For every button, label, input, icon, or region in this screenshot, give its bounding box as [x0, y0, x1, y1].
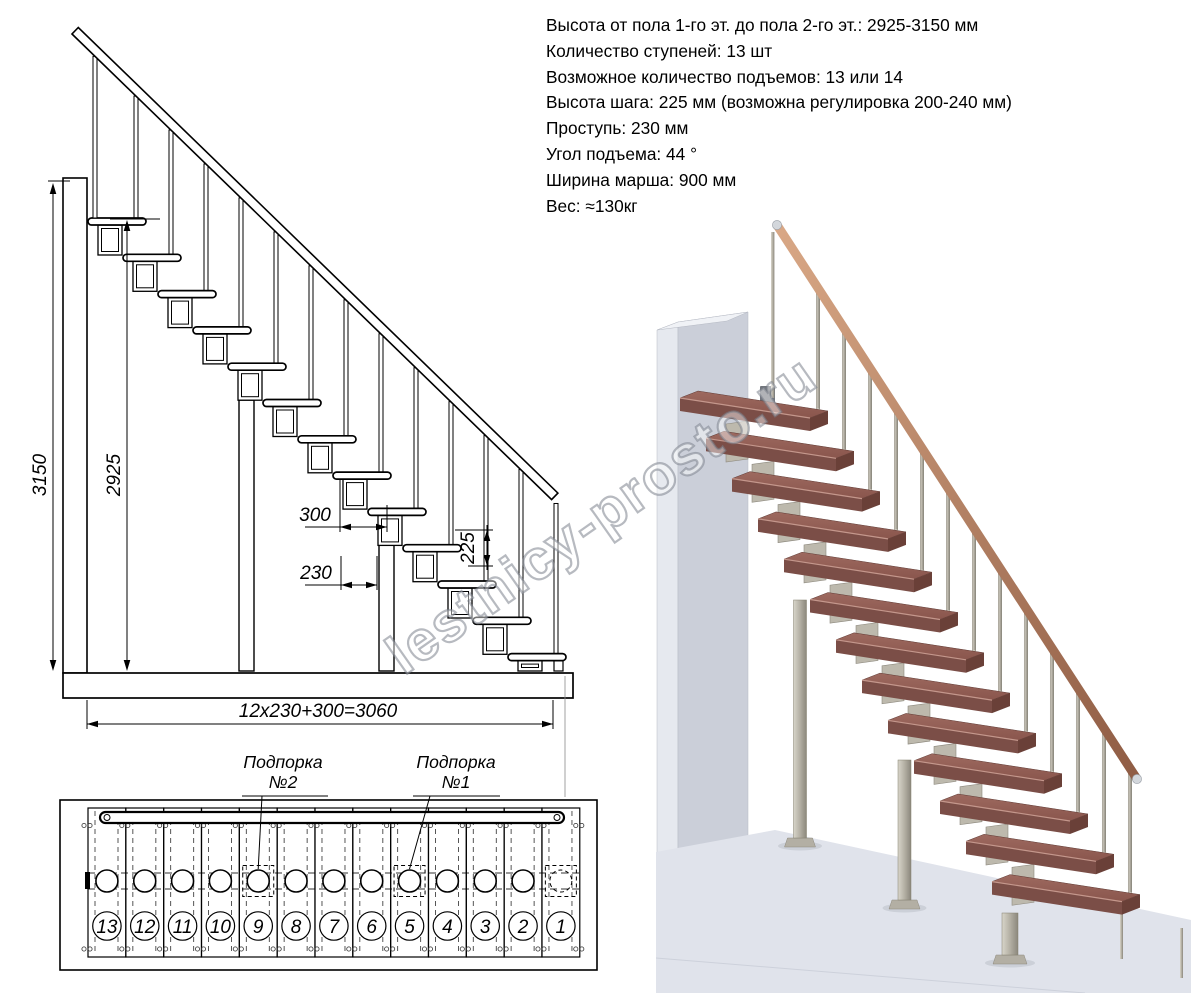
- dim-total-height: 3150: [30, 453, 51, 496]
- plan-handrail: [100, 812, 564, 823]
- dimension-arrow: [341, 582, 352, 589]
- spec-line: Ширина марша: 900 мм: [546, 168, 1106, 194]
- dimension-arrow: [542, 721, 553, 728]
- step-module-inner: [137, 265, 154, 288]
- baluster-3d: [1128, 768, 1132, 895]
- module-connector-circle: [323, 870, 345, 892]
- tread-side: [263, 400, 321, 407]
- blueprint-page: 3150 2925 300 230 225 12x230+300=3060 По…: [0, 0, 1191, 993]
- dim-riser: 225: [458, 532, 479, 565]
- baluster: [344, 300, 348, 436]
- step-module-inner: [277, 410, 294, 433]
- step-module-inner: [207, 337, 224, 360]
- step-number: 6: [366, 917, 377, 938]
- spec-line: Угол подъема: 44 °: [546, 142, 1106, 168]
- tread-side: [508, 654, 566, 661]
- tread-side: [298, 436, 356, 443]
- baluster: [93, 56, 97, 218]
- module-connector-circle: [96, 870, 118, 892]
- spec-line: Высота шага: 225 мм (возможна регулировк…: [546, 90, 1106, 116]
- step-number: 9: [253, 917, 264, 938]
- step-number: 4: [442, 917, 453, 938]
- tread-side: [368, 508, 426, 515]
- baluster: [239, 198, 243, 327]
- baluster: [274, 232, 278, 363]
- step-number: 12: [134, 917, 156, 938]
- render-3d: [656, 220, 1191, 993]
- tread-side: [158, 291, 216, 298]
- module-connector-circle: [361, 870, 383, 892]
- dim-module: 300: [299, 505, 331, 526]
- step-module-inner: [102, 229, 119, 252]
- baluster-3d: [1050, 648, 1054, 775]
- baluster-3d: [946, 488, 950, 613]
- step-module-inner: [487, 628, 504, 651]
- tread-side: [403, 545, 461, 552]
- tread-side: [193, 327, 251, 334]
- step-number: 13: [96, 917, 118, 938]
- dimension-arrow: [366, 582, 377, 589]
- dimension-arrow: [340, 524, 351, 531]
- support1-label-line1: Подпорка: [416, 752, 495, 772]
- handrail-cap: [1132, 774, 1141, 783]
- step-module-inner: [172, 301, 189, 324]
- baluster: [169, 130, 173, 254]
- baluster-3d: [1024, 608, 1028, 734]
- bottom-support: [554, 661, 563, 671]
- step-module-inner: [522, 664, 539, 667]
- baluster-3d: [998, 568, 1002, 694]
- post-flange: [785, 838, 816, 847]
- module-connector-circle: [172, 870, 194, 892]
- spec-line: Количество ступеней: 13 шт: [546, 39, 1106, 65]
- step-number: 5: [404, 917, 415, 938]
- module-connector-circle: [247, 870, 269, 892]
- step-number: 11: [173, 917, 193, 938]
- plan-view: Подпорка №2 Подпорка №1 13 12 11 10 9 8 …: [60, 752, 597, 970]
- spec-line: Вес: ≈130кг: [546, 194, 1106, 220]
- step-module-inner: [382, 519, 399, 542]
- support-post-step9: [794, 600, 807, 838]
- module-connector-circle: [399, 870, 421, 892]
- tread-side: [123, 254, 181, 261]
- baluster-3d: [920, 448, 924, 573]
- module-connector-circle: [285, 870, 307, 892]
- step-number: 1: [556, 917, 567, 938]
- post-flange: [889, 900, 920, 909]
- step-number: 7: [329, 917, 341, 938]
- base-plate: [63, 673, 573, 698]
- baluster: [309, 266, 313, 400]
- baluster-3d: [972, 528, 976, 654]
- spec-block: Высота от пола 1-го эт. до пола 2-го эт.…: [546, 13, 1106, 219]
- step-module-inner: [242, 374, 259, 397]
- floor-rod: [1180, 928, 1183, 978]
- baluster-3d: [894, 408, 898, 533]
- support-post-step1: [1002, 913, 1018, 955]
- step-number: 10: [210, 917, 232, 938]
- step-number: 3: [480, 917, 491, 938]
- upper-floor-wall: [63, 178, 87, 673]
- support-post-2: [239, 400, 254, 671]
- module-connector-circle: [209, 870, 231, 892]
- post-flange: [993, 955, 1027, 964]
- support1-label-line2: №1: [442, 772, 471, 792]
- baluster: [414, 368, 418, 509]
- baluster: [204, 164, 208, 291]
- dimension-arrow: [50, 183, 57, 194]
- dimension-arrow: [50, 660, 57, 671]
- baluster-3d: [1076, 688, 1080, 815]
- baluster-3d: [1102, 728, 1106, 855]
- step-number: 8: [291, 917, 302, 938]
- dim-floor-height: 2925: [104, 453, 125, 497]
- wall-side-face: [657, 322, 678, 860]
- spec-line: Проступь: 230 мм: [546, 116, 1106, 142]
- baluster: [379, 334, 383, 472]
- spec-line: Возможное количество подъемов: 13 или 14: [546, 65, 1106, 91]
- baluster-3d: [868, 368, 872, 492]
- dimension-arrow: [87, 721, 98, 728]
- handrail-cap: [772, 220, 781, 229]
- step-module-inner: [347, 483, 364, 506]
- module-connector-circle: [436, 870, 458, 892]
- step-number: 2: [517, 917, 529, 938]
- baluster: [134, 96, 138, 218]
- baluster-3d: [842, 328, 846, 452]
- baluster: [449, 402, 453, 545]
- tread-side: [333, 472, 391, 479]
- tread-side: [228, 363, 286, 370]
- step-module-inner: [312, 446, 329, 469]
- module-connector-circle: [512, 870, 534, 892]
- dimension-arrow: [124, 660, 131, 671]
- dim-total-run: 12x230+300=3060: [239, 701, 398, 722]
- support-post-step5: [898, 760, 911, 900]
- step-module-inner: [417, 555, 434, 578]
- support2-label-line1: Подпорка: [243, 752, 322, 772]
- spec-line: Высота от пола 1-го эт. до пола 2-го эт.…: [546, 13, 1106, 39]
- dim-tread: 230: [299, 563, 332, 584]
- module-connector-circle: [134, 870, 156, 892]
- module-connector-circle: [474, 870, 496, 892]
- support2-label-line2: №2: [269, 772, 298, 792]
